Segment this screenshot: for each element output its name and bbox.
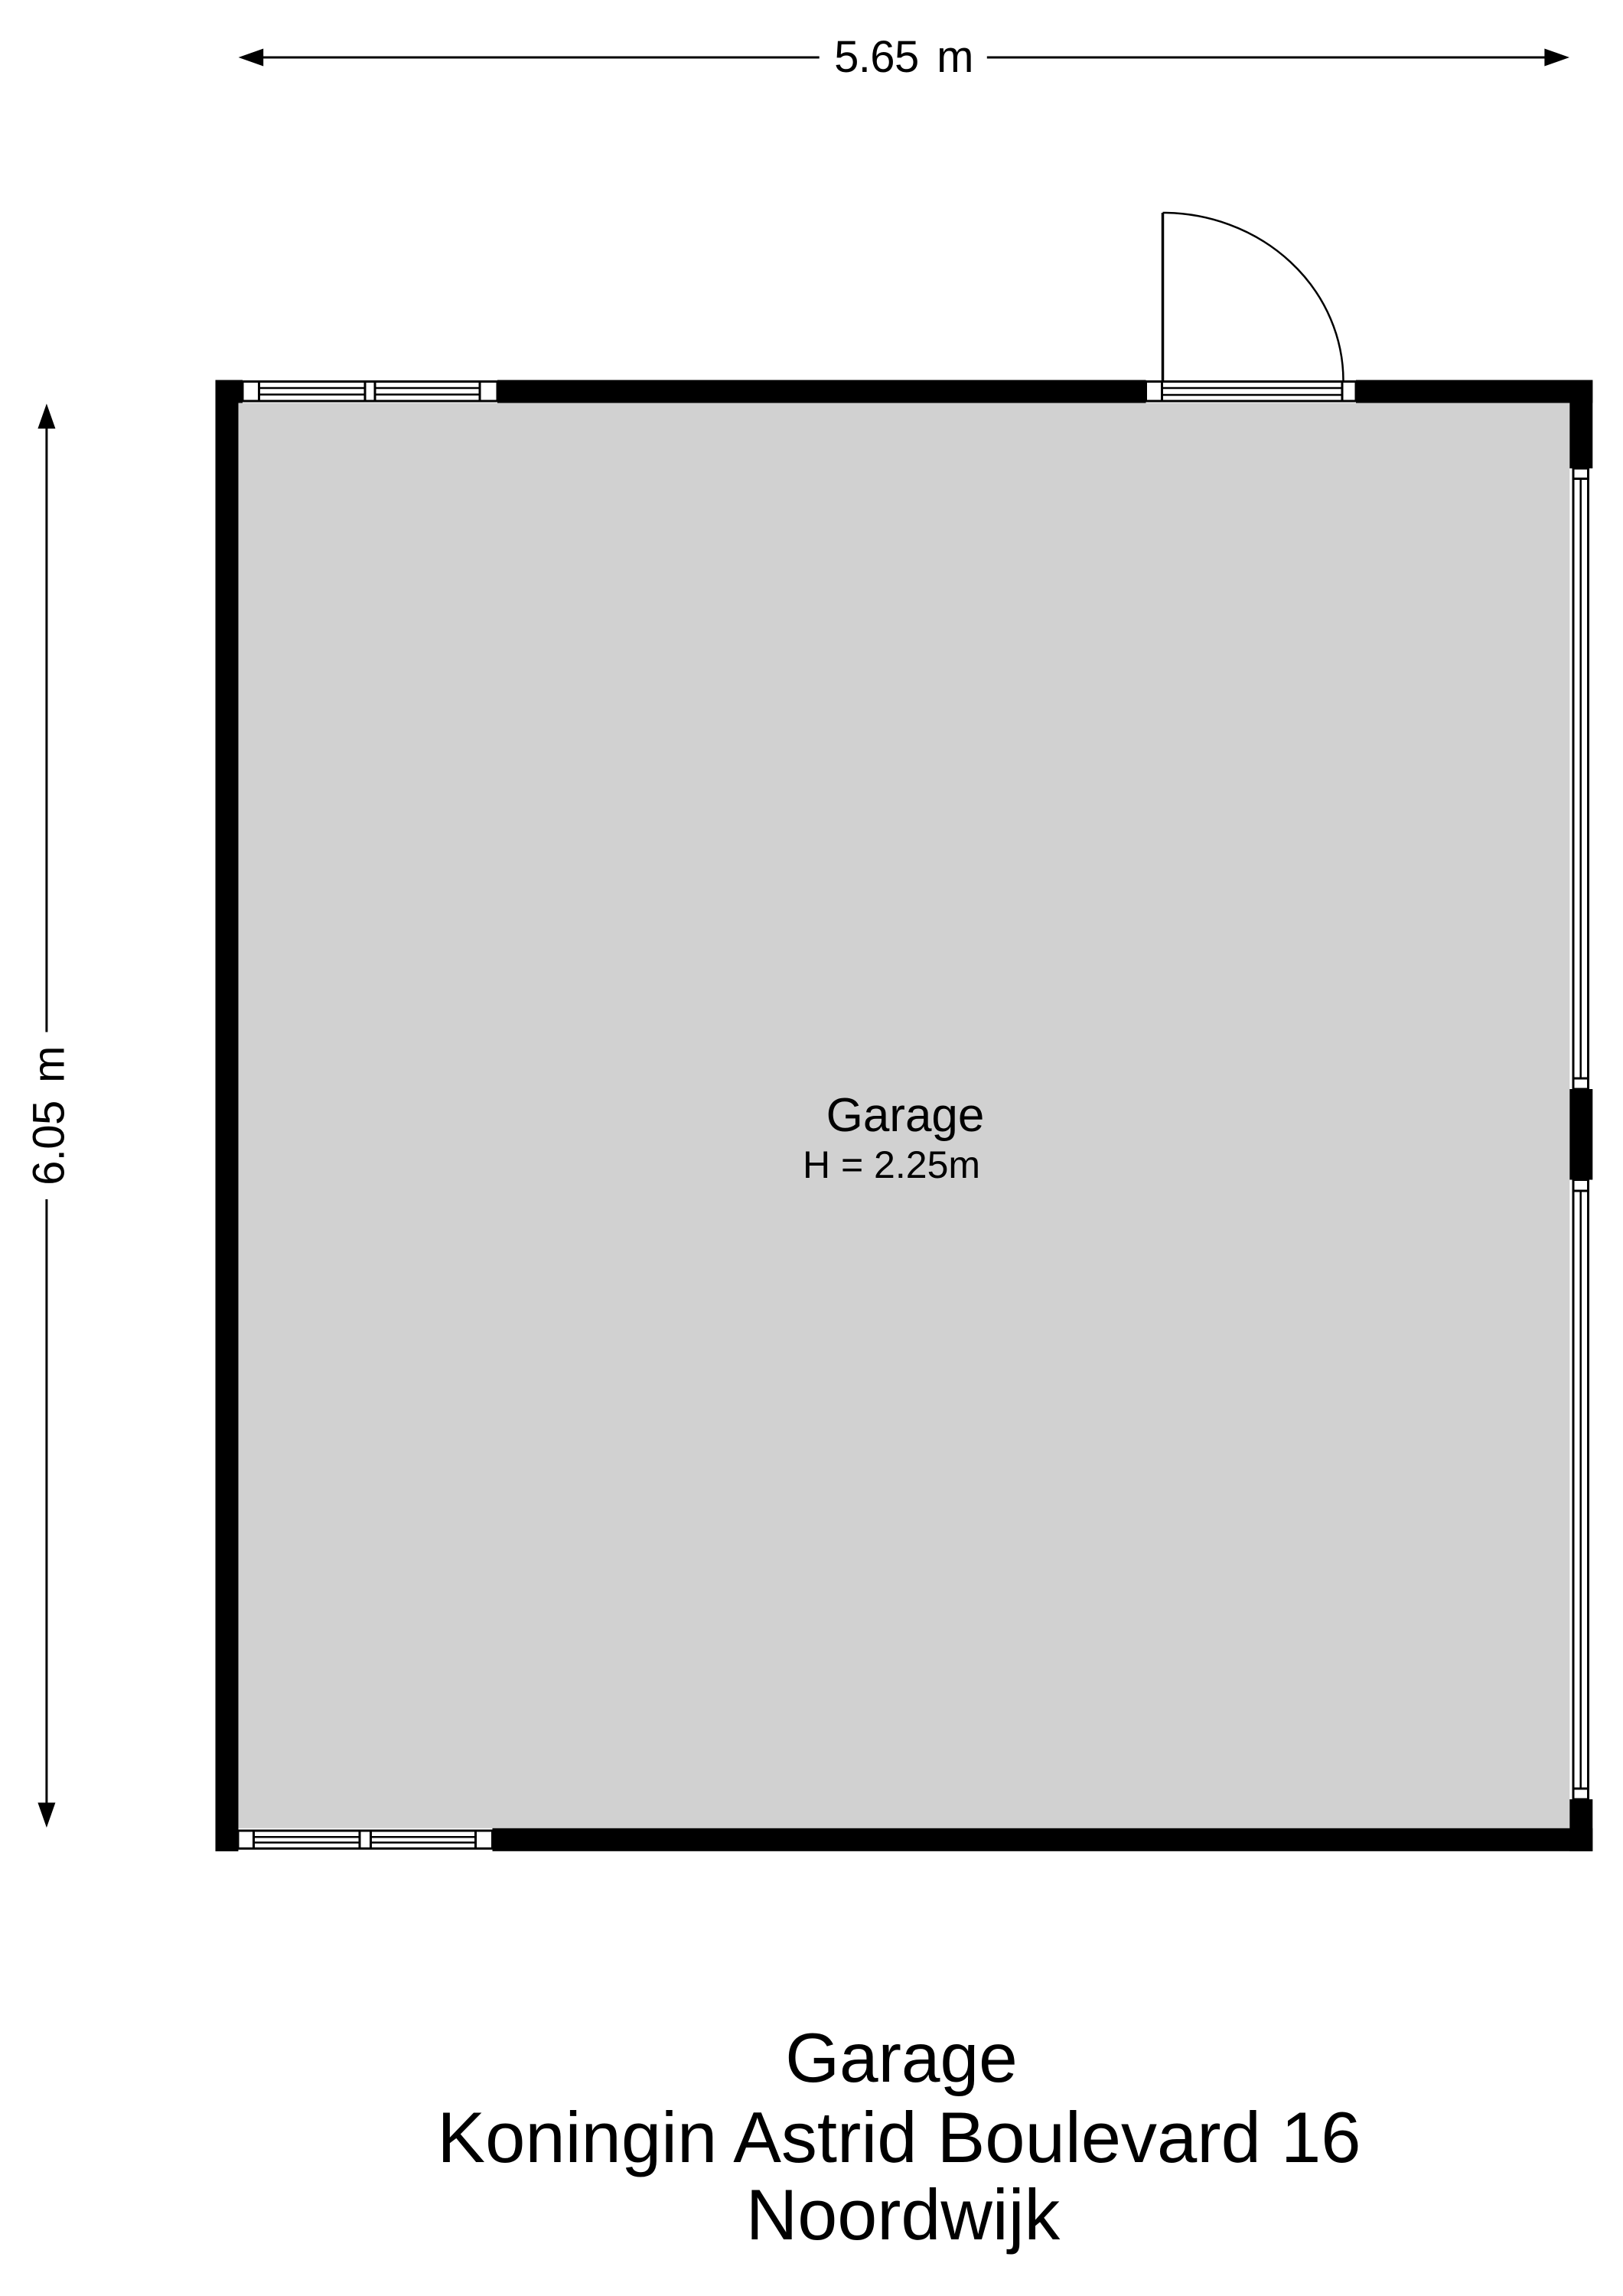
svg-text:Koningin Astrid Boulevard 16: Koningin Astrid Boulevard 16 xyxy=(437,2097,1361,2177)
svg-text:Garage: Garage xyxy=(826,1089,985,1142)
svg-text:6.05 m: 6.05 m xyxy=(24,1046,74,1186)
svg-text:H = 2.25m: H = 2.25m xyxy=(803,1143,980,1186)
svg-text:5.65 m: 5.65 m xyxy=(834,32,973,82)
svg-text:Noordwijk: Noordwijk xyxy=(746,2174,1061,2255)
svg-text:Garage: Garage xyxy=(785,2020,1018,2097)
